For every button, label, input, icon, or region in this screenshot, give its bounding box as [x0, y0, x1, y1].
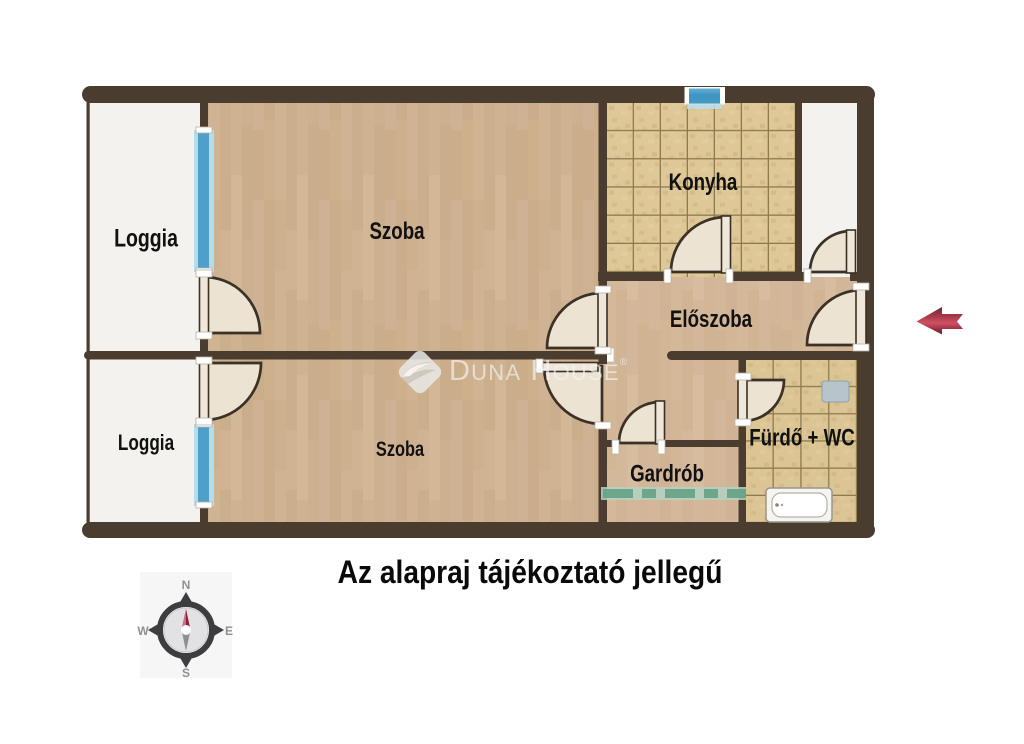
svg-text:S: S — [182, 666, 190, 680]
svg-text:Fürdő + WC: Fürdő + WC — [749, 424, 855, 451]
svg-text:Szoba: Szoba — [376, 437, 425, 460]
svg-text:Az alapraj tájékoztató jellegű: Az alapraj tájékoztató jellegű — [338, 555, 723, 590]
svg-text:Szoba: Szoba — [369, 218, 425, 245]
svg-text:Loggia: Loggia — [118, 431, 175, 456]
svg-text:Gardrób: Gardrób — [630, 460, 704, 487]
svg-text:W: W — [137, 624, 149, 638]
svg-text:Előszoba: Előszoba — [670, 306, 753, 333]
svg-text:Konyha: Konyha — [669, 169, 739, 196]
svg-text:Loggia: Loggia — [114, 224, 178, 252]
svg-text:DUNA HOUSE®: DUNA HOUSE® — [449, 355, 628, 387]
svg-text:N: N — [182, 578, 191, 592]
svg-text:E: E — [225, 624, 233, 638]
